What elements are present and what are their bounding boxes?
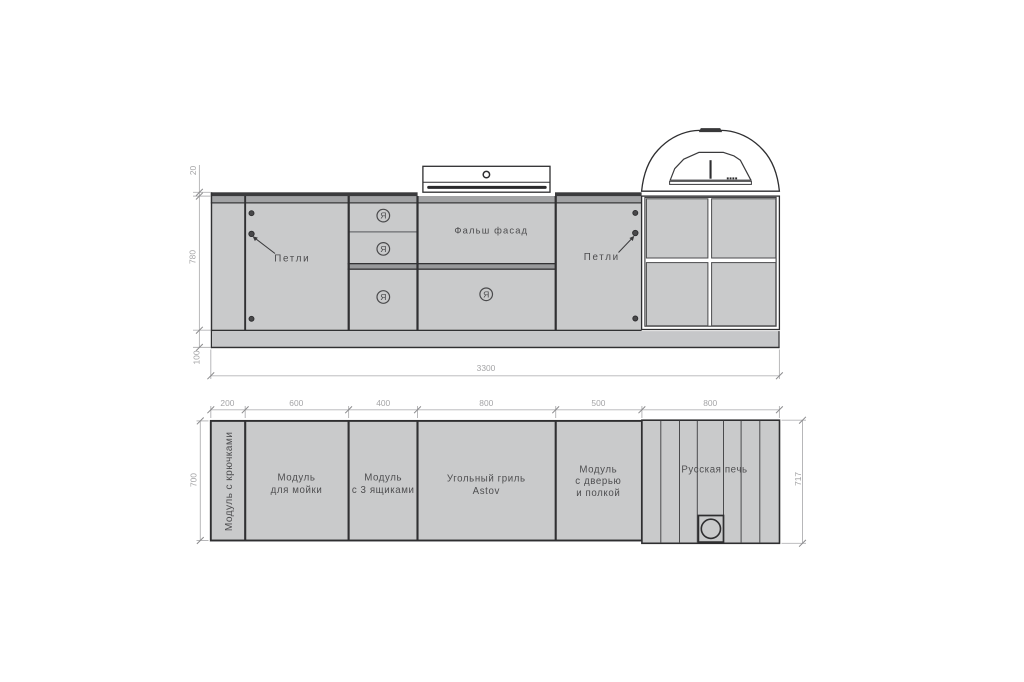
- svg-text:Русская печь: Русская печь: [681, 465, 747, 476]
- svg-text:700: 700: [189, 473, 199, 487]
- svg-text:для мойки: для мойки: [271, 485, 323, 496]
- svg-text:Модуль: Модуль: [579, 464, 617, 475]
- svg-text:Угольный гриль: Угольный гриль: [447, 474, 526, 485]
- svg-text:200: 200: [220, 398, 234, 408]
- svg-text:с дверью: с дверью: [575, 476, 621, 487]
- svg-text:Я: Я: [380, 244, 386, 254]
- svg-text:100: 100: [192, 350, 202, 364]
- svg-text:800: 800: [703, 398, 717, 408]
- svg-text:500: 500: [591, 398, 605, 408]
- svg-text:и полкой: и полкой: [576, 488, 620, 499]
- svg-text:Модуль: Модуль: [278, 473, 316, 484]
- svg-text:Я: Я: [380, 211, 386, 221]
- svg-text:800: 800: [479, 398, 493, 408]
- svg-text:Фальш фасад: Фальш фасад: [454, 225, 528, 236]
- svg-text:400: 400: [376, 398, 390, 408]
- svg-text:Модуль с крючками: Модуль с крючками: [224, 432, 235, 532]
- svg-text:Петли: Петли: [584, 252, 620, 263]
- svg-text:Astov: Astov: [473, 486, 500, 497]
- svg-text:Петли: Петли: [274, 254, 310, 265]
- svg-text:3300: 3300: [477, 363, 496, 373]
- svg-text:780: 780: [188, 250, 198, 264]
- svg-text:600: 600: [289, 398, 303, 408]
- svg-text:Я: Я: [483, 289, 489, 299]
- svg-text:717: 717: [793, 472, 803, 486]
- svg-text:с 3 ящиками: с 3 ящиками: [352, 485, 415, 496]
- svg-text:20: 20: [188, 166, 198, 176]
- svg-text:Я: Я: [380, 292, 386, 302]
- svg-text:Модуль: Модуль: [364, 473, 402, 484]
